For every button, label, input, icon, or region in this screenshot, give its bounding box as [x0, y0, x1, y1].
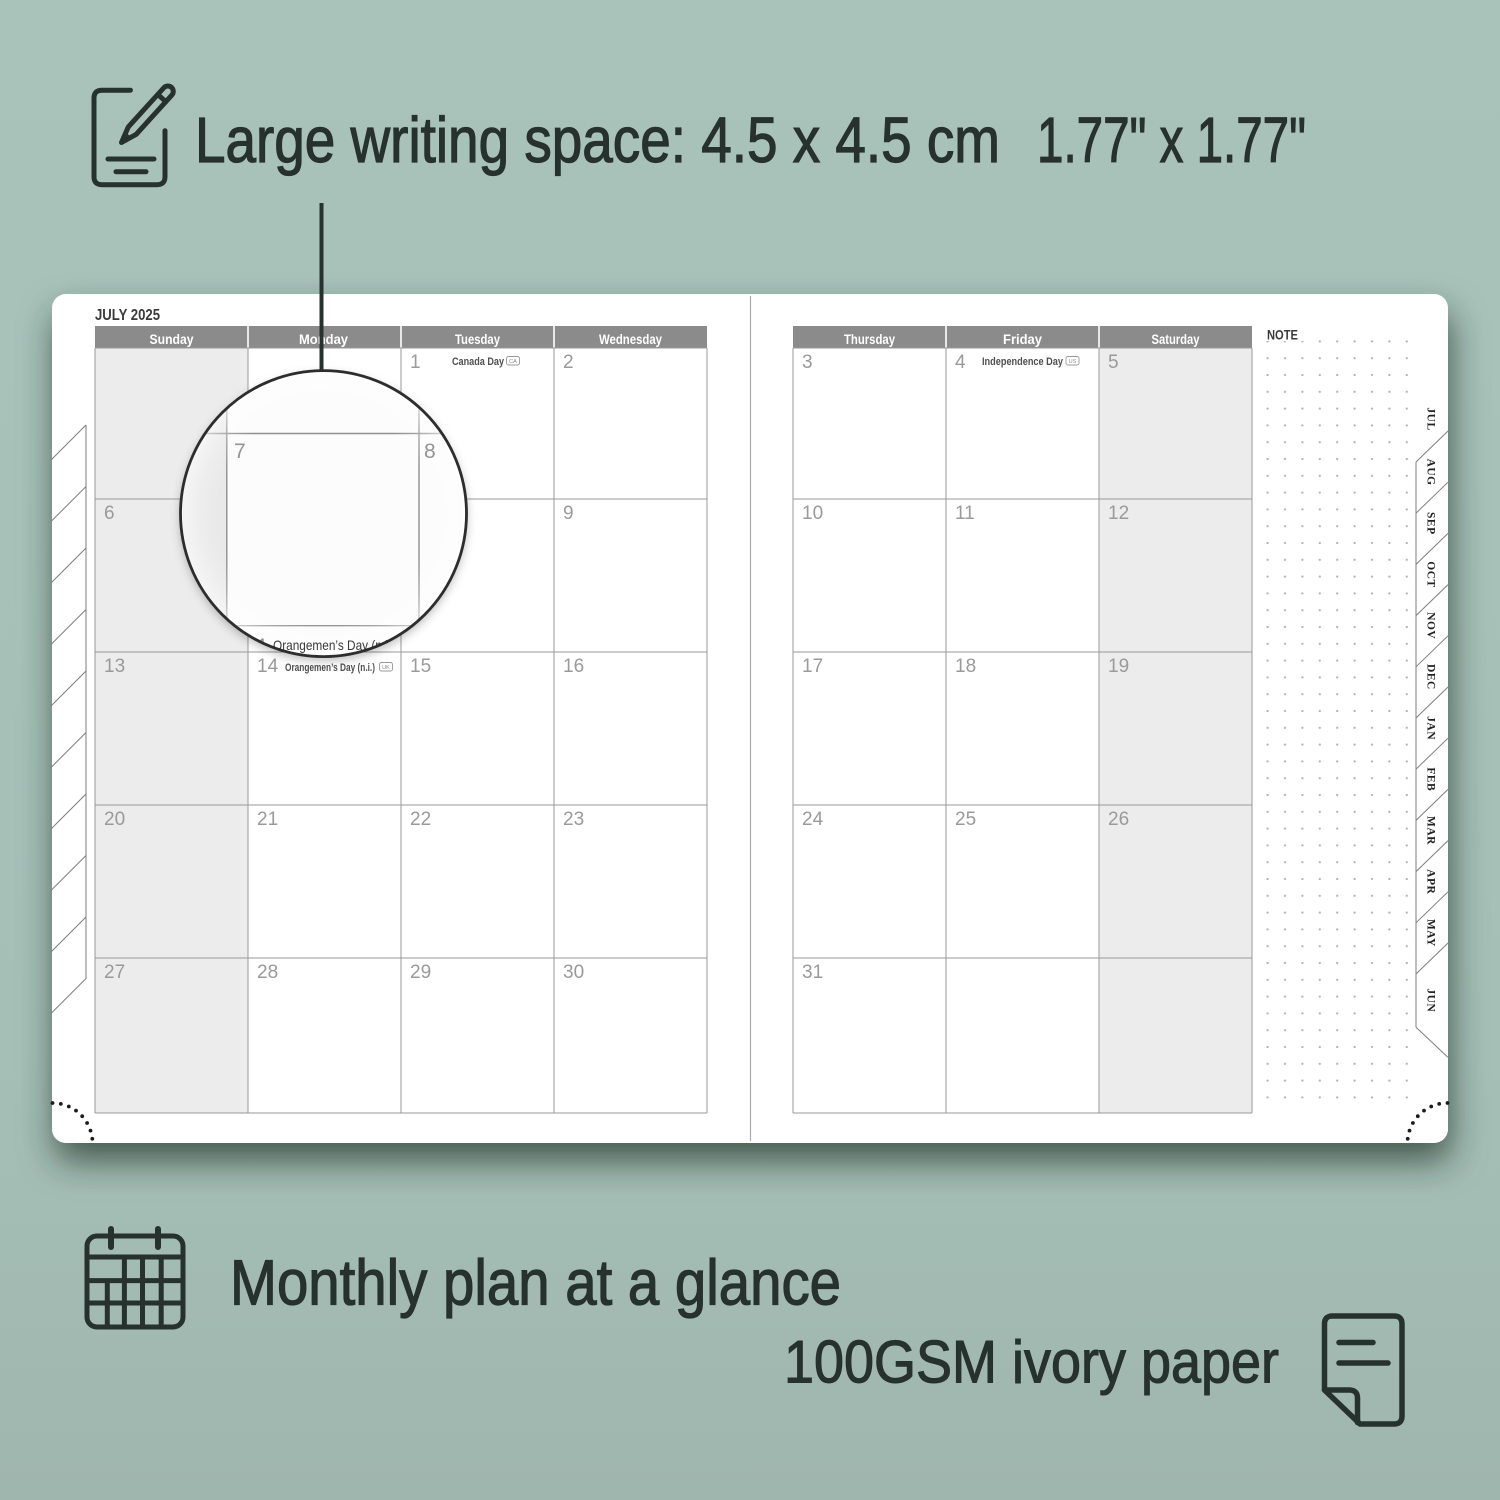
svg-text:24: 24	[802, 809, 824, 830]
svg-text:JUL: JUL	[1425, 407, 1437, 430]
svg-text:US: US	[1069, 359, 1077, 365]
svg-text:8: 8	[424, 440, 436, 463]
svg-text:JAN: JAN	[1425, 716, 1437, 740]
svg-text:SEP: SEP	[1425, 512, 1437, 535]
svg-text:NOV: NOV	[1425, 612, 1437, 639]
svg-text:30: 30	[563, 962, 584, 983]
svg-text:6: 6	[104, 503, 115, 524]
svg-text:JULY 2025: JULY 2025	[95, 307, 160, 324]
svg-text:19: 19	[1108, 656, 1129, 677]
svg-text:7: 7	[234, 440, 246, 463]
svg-text:Canada Day: Canada Day	[452, 356, 505, 368]
svg-text:25: 25	[955, 809, 976, 830]
svg-text:Thursday: Thursday	[844, 332, 895, 347]
svg-text:Orangemen’s Day (n.i.): Orangemen’s Day (n.i.)	[285, 662, 375, 674]
svg-text:26: 26	[1108, 809, 1129, 830]
svg-text:31: 31	[802, 962, 823, 983]
svg-text:10: 10	[802, 503, 823, 524]
svg-text:16: 16	[563, 656, 584, 677]
svg-text:27: 27	[104, 962, 125, 983]
svg-text:FEB: FEB	[1425, 767, 1437, 791]
svg-text:2: 2	[563, 352, 574, 373]
svg-text:OCT: OCT	[1425, 561, 1437, 587]
svg-text:18: 18	[955, 656, 976, 677]
svg-text:Saturday: Saturday	[1152, 332, 1200, 347]
svg-text:22: 22	[410, 809, 431, 830]
svg-text:4: 4	[955, 352, 966, 373]
svg-text:Independence Day: Independence Day	[982, 356, 1064, 368]
svg-text:MAR: MAR	[1425, 816, 1437, 845]
svg-text:Monday: Monday	[299, 332, 348, 347]
svg-text:9: 9	[563, 503, 574, 524]
svg-text:Friday: Friday	[1003, 332, 1042, 347]
svg-text:Sunday: Sunday	[150, 332, 194, 347]
svg-text:AUG: AUG	[1425, 459, 1437, 486]
svg-text:12: 12	[1108, 503, 1129, 524]
svg-text:13: 13	[104, 656, 125, 677]
svg-text:CA: CA	[509, 359, 517, 365]
svg-text:1: 1	[410, 352, 421, 373]
svg-text:100GSM ivory paper: 100GSM ivory paper	[784, 1329, 1279, 1396]
svg-text:Monthly plan at a glance: Monthly plan at a glance	[230, 1247, 841, 1319]
svg-text:17: 17	[802, 656, 823, 677]
svg-text:UK: UK	[382, 665, 390, 671]
svg-text:JUN: JUN	[1425, 988, 1437, 1012]
svg-text:15: 15	[410, 656, 431, 677]
svg-text:23: 23	[563, 809, 584, 830]
svg-text:11: 11	[955, 503, 975, 524]
svg-text:Tuesday: Tuesday	[455, 332, 500, 347]
svg-text:1.77" x 1.77": 1.77" x 1.77"	[1037, 104, 1306, 176]
svg-text:DEC: DEC	[1425, 664, 1437, 690]
svg-text:MAY: MAY	[1425, 919, 1437, 947]
svg-text:14: 14	[257, 656, 279, 677]
svg-text:Wednesday: Wednesday	[599, 332, 662, 347]
svg-text:20: 20	[104, 809, 125, 830]
svg-text:21: 21	[257, 809, 278, 830]
svg-text:29: 29	[410, 962, 431, 983]
svg-text:NOTE: NOTE	[1267, 327, 1298, 343]
svg-text:3: 3	[802, 352, 813, 373]
svg-text:APR: APR	[1425, 869, 1437, 894]
svg-text:5: 5	[1108, 352, 1119, 373]
svg-text:28: 28	[257, 962, 278, 983]
svg-text:Large writing space: 4.5 x 4.5: Large writing space: 4.5 x 4.5 cm	[195, 104, 1000, 176]
